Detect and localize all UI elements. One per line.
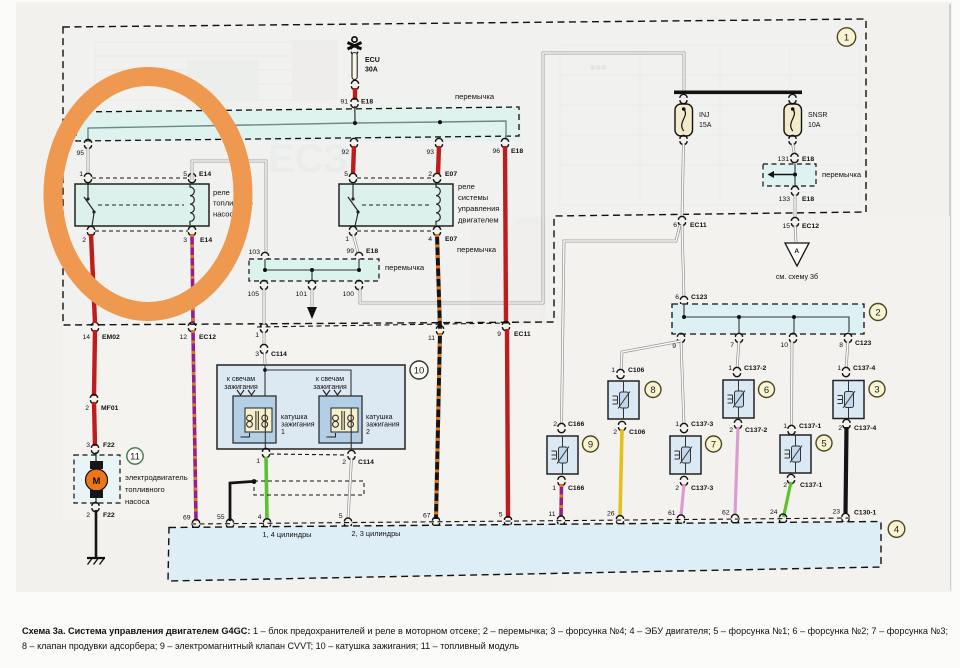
svg-text:1: 1 xyxy=(675,421,679,428)
svg-text:61: 61 xyxy=(668,510,676,517)
svg-text:95: 95 xyxy=(76,150,84,157)
svg-text:2: 2 xyxy=(85,405,89,412)
svg-text:зажигания: зажигания xyxy=(224,384,258,391)
svg-text:24: 24 xyxy=(770,509,778,516)
svg-text:двигателем: двигателем xyxy=(458,216,499,225)
svg-text:5: 5 xyxy=(499,512,503,519)
svg-text:ЕСЗ: ЕСЗ xyxy=(268,137,348,181)
svg-text:C137-2: C137-2 xyxy=(744,365,767,372)
svg-text:3: 3 xyxy=(86,442,90,449)
svg-text:11: 11 xyxy=(130,451,140,462)
svg-text:100: 100 xyxy=(343,291,355,298)
svg-text:F22: F22 xyxy=(103,512,115,519)
svg-text:1: 1 xyxy=(79,171,83,178)
svg-text:2: 2 xyxy=(342,459,346,466)
svg-text:67: 67 xyxy=(423,512,431,519)
svg-text:10: 10 xyxy=(414,365,425,376)
svg-text:9: 9 xyxy=(672,343,676,350)
svg-text:23: 23 xyxy=(832,509,840,516)
svg-text:91: 91 xyxy=(340,99,348,106)
svg-text:1: 1 xyxy=(844,32,849,43)
svg-text:EC12: EC12 xyxy=(199,334,216,341)
svg-text:1: 1 xyxy=(255,332,259,339)
svg-text:перемычка: перемычка xyxy=(457,245,497,254)
svg-text:62: 62 xyxy=(722,510,730,517)
svg-text:8: 8 xyxy=(839,342,843,349)
svg-text:2: 2 xyxy=(82,237,86,244)
svg-text:9: 9 xyxy=(497,331,501,338)
svg-text:1: 1 xyxy=(611,367,615,374)
svg-text:7: 7 xyxy=(730,342,734,349)
svg-text:10: 10 xyxy=(780,342,788,349)
svg-text:INJ: INJ xyxy=(699,112,710,119)
svg-text:C137-3: C137-3 xyxy=(691,421,714,428)
svg-text:1, 4 цилиндры: 1, 4 цилиндры xyxy=(263,530,312,539)
svg-text:EC12: EC12 xyxy=(802,223,819,230)
svg-text:катушка: катушка xyxy=(366,414,393,421)
svg-text:1: 1 xyxy=(256,458,260,465)
svg-text:15: 15 xyxy=(782,223,790,230)
svg-text:103: 103 xyxy=(249,249,261,256)
svg-text:2: 2 xyxy=(838,425,842,432)
svg-text:EC11: EC11 xyxy=(514,331,531,338)
svg-text:реле: реле xyxy=(213,188,230,197)
svg-text:Схема 3а. Система управления д: Схема 3а. Система управления двигателем … xyxy=(22,626,948,636)
svg-text:зажигания: зажигания xyxy=(313,384,347,391)
svg-text:1: 1 xyxy=(728,365,732,372)
svg-text:перемычка: перемычка xyxy=(822,170,862,179)
svg-text:99: 99 xyxy=(346,248,354,255)
svg-text:перемычка: перемычка xyxy=(385,263,425,272)
svg-text:A: A xyxy=(794,248,799,255)
svg-text:12: 12 xyxy=(179,334,187,341)
svg-text:5: 5 xyxy=(344,171,348,178)
svg-text:11: 11 xyxy=(548,511,555,518)
svg-text:C123: C123 xyxy=(855,340,871,347)
svg-text:69: 69 xyxy=(183,515,191,522)
svg-text:2: 2 xyxy=(613,429,617,436)
svg-text:E18: E18 xyxy=(361,99,373,106)
svg-text:2: 2 xyxy=(875,307,880,318)
svg-text:101: 101 xyxy=(296,291,308,298)
svg-text:C114: C114 xyxy=(271,351,287,358)
svg-text:1: 1 xyxy=(783,423,787,430)
svg-text:9: 9 xyxy=(588,439,593,450)
svg-text:5: 5 xyxy=(821,438,826,449)
svg-text:E14: E14 xyxy=(199,171,211,178)
svg-text:MF01: MF01 xyxy=(101,405,119,412)
svg-text:■■■: ■■■ xyxy=(590,62,606,72)
svg-text:реле: реле xyxy=(458,182,475,191)
svg-text:топливного: топливного xyxy=(125,485,165,494)
svg-text:3: 3 xyxy=(255,351,259,358)
svg-text:6: 6 xyxy=(764,385,769,396)
svg-text:C166: C166 xyxy=(568,421,584,428)
svg-text:1: 1 xyxy=(281,429,285,436)
svg-text:30A: 30A xyxy=(365,67,378,74)
svg-text:26: 26 xyxy=(607,511,615,518)
svg-text:C106: C106 xyxy=(628,367,644,374)
svg-text:2: 2 xyxy=(366,429,370,436)
svg-text:C137-4: C137-4 xyxy=(853,365,876,372)
svg-text:E07: E07 xyxy=(445,171,457,178)
svg-text:4: 4 xyxy=(428,236,432,243)
svg-text:C137-3: C137-3 xyxy=(691,485,714,492)
svg-text:7: 7 xyxy=(711,439,716,450)
svg-text:8 – клапан продувки адсорбера;: 8 – клапан продувки адсорбера; 9 – элект… xyxy=(22,641,519,651)
svg-text:93: 93 xyxy=(426,149,434,156)
svg-text:C106: C106 xyxy=(629,429,645,436)
svg-text:электродвигатель: электродвигатель xyxy=(125,473,188,482)
svg-text:C114: C114 xyxy=(358,459,374,466)
svg-text:6: 6 xyxy=(673,222,677,229)
svg-text:к свечам: к свечам xyxy=(316,376,344,383)
svg-text:EC11: EC11 xyxy=(690,222,707,229)
svg-text:1: 1 xyxy=(345,236,349,243)
svg-text:2: 2 xyxy=(428,171,432,178)
svg-text:2: 2 xyxy=(729,427,733,434)
svg-text:15A: 15A xyxy=(699,122,712,129)
svg-text:зажигания: зажигания xyxy=(281,422,315,429)
svg-text:M: M xyxy=(93,476,101,487)
svg-text:2: 2 xyxy=(553,421,557,428)
svg-text:катушка: катушка xyxy=(281,414,308,421)
svg-text:к свечам: к свечам xyxy=(227,376,255,383)
svg-text:зажигания: зажигания xyxy=(366,422,400,429)
svg-text:E18: E18 xyxy=(366,248,378,255)
svg-text:133: 133 xyxy=(779,196,791,203)
svg-text:5: 5 xyxy=(339,513,343,520)
svg-text:C130-1: C130-1 xyxy=(854,510,877,517)
svg-text:105: 105 xyxy=(248,291,260,298)
svg-text:10A: 10A xyxy=(808,122,821,129)
svg-text:ECU: ECU xyxy=(365,57,380,64)
svg-text:E14: E14 xyxy=(200,237,212,244)
svg-text:4: 4 xyxy=(894,524,899,535)
svg-text:14: 14 xyxy=(82,334,90,341)
svg-text:см. схему 3б: см. схему 3б xyxy=(776,272,818,281)
svg-text:E18: E18 xyxy=(511,148,523,155)
svg-text:5: 5 xyxy=(183,171,187,178)
svg-text:6: 6 xyxy=(675,294,679,301)
svg-text:C137-1: C137-1 xyxy=(800,482,823,489)
svg-text:системы: системы xyxy=(458,193,488,202)
svg-text:управления: управления xyxy=(458,204,499,213)
svg-text:2: 2 xyxy=(86,512,90,519)
svg-text:E18: E18 xyxy=(802,156,814,163)
svg-text:11: 11 xyxy=(428,335,435,342)
svg-text:2, 3 цилиндры: 2, 3 цилиндры xyxy=(352,529,401,538)
svg-text:2: 2 xyxy=(783,482,787,489)
svg-text:E07: E07 xyxy=(445,236,457,243)
svg-text:C137-2: C137-2 xyxy=(745,427,768,434)
svg-text:EM02: EM02 xyxy=(102,334,120,341)
svg-text:3: 3 xyxy=(183,237,187,244)
svg-text:перемычка: перемычка xyxy=(455,92,495,101)
svg-text:C137-4: C137-4 xyxy=(854,425,877,432)
svg-text:1: 1 xyxy=(552,485,556,492)
svg-text:96: 96 xyxy=(492,148,500,155)
svg-text:4: 4 xyxy=(258,514,262,521)
svg-text:2: 2 xyxy=(675,485,679,492)
svg-text:C166: C166 xyxy=(568,485,584,492)
svg-text:C137-1: C137-1 xyxy=(799,423,822,430)
svg-text:E18: E18 xyxy=(802,196,814,203)
svg-text:насоса: насоса xyxy=(125,497,150,506)
svg-text:F22: F22 xyxy=(103,442,115,449)
svg-text:C123: C123 xyxy=(691,294,707,301)
svg-text:3: 3 xyxy=(874,384,879,395)
svg-text:SNSR: SNSR xyxy=(808,112,827,119)
svg-text:92: 92 xyxy=(341,149,349,156)
svg-text:131: 131 xyxy=(778,156,790,163)
svg-text:1: 1 xyxy=(837,365,841,372)
svg-text:8: 8 xyxy=(650,385,655,396)
svg-text:55: 55 xyxy=(217,514,225,521)
